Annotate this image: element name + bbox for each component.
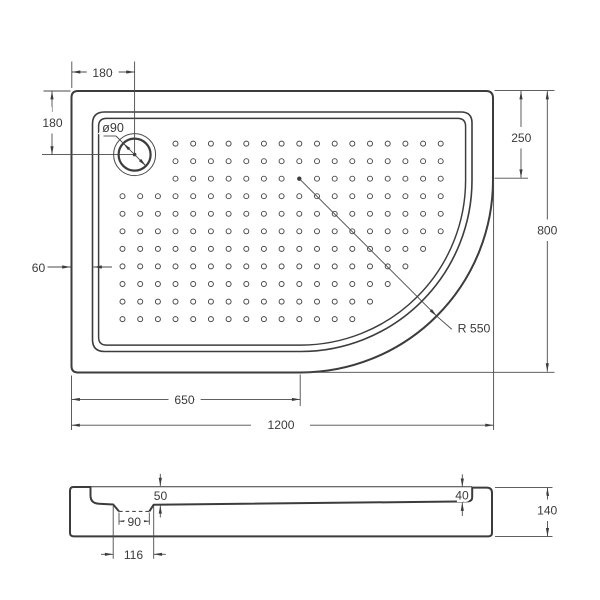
svg-text:60: 60: [32, 261, 46, 275]
svg-text:50: 50: [154, 489, 168, 503]
svg-text:180: 180: [42, 116, 62, 130]
svg-text:250: 250: [511, 131, 531, 145]
svg-text:650: 650: [174, 393, 194, 407]
svg-text:140: 140: [537, 504, 557, 518]
svg-text:90: 90: [127, 515, 141, 529]
svg-text:116: 116: [124, 548, 144, 562]
svg-text:40: 40: [455, 488, 469, 502]
svg-text:800: 800: [537, 223, 557, 237]
svg-text:1200: 1200: [268, 418, 295, 432]
svg-text:180: 180: [92, 66, 112, 80]
svg-text:R 550: R 550: [458, 321, 491, 335]
svg-text:ø90: ø90: [102, 121, 124, 135]
